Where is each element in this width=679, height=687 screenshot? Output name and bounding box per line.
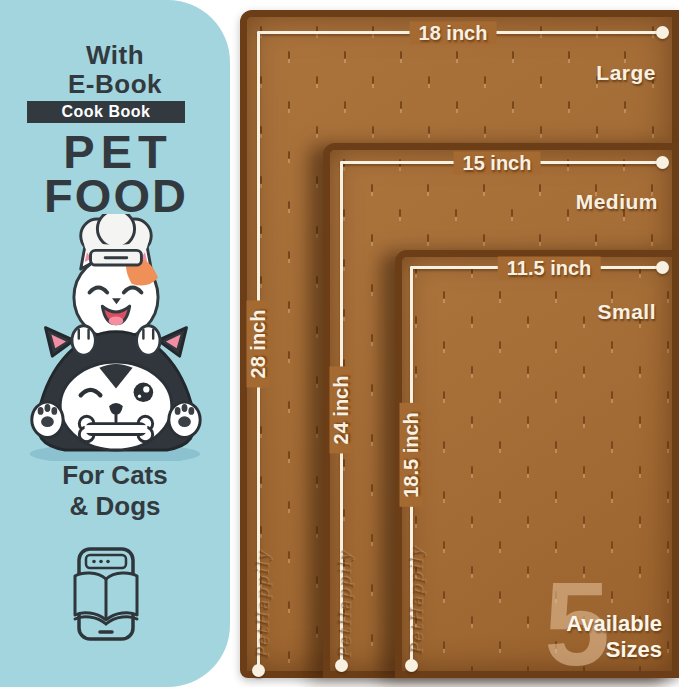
title-pet: PET [7, 128, 223, 175]
ebook-note-line2: E-Book [7, 70, 223, 99]
sidebar: With E-Book Cook Book PET FOOD [0, 0, 230, 687]
ebook-icon [68, 546, 144, 642]
dimension-dot [252, 664, 265, 677]
available-sizes-line2: Sizes [566, 637, 662, 663]
available-sizes-line1: Available [566, 611, 662, 637]
product-infographic: With E-Book Cook Book PET FOOD [0, 0, 679, 687]
audience-line2: & Dogs [7, 491, 223, 522]
audience-text: For Cats & Dogs [7, 460, 223, 521]
dimension-dot [656, 156, 669, 169]
height-label-medium: 24 inch [330, 367, 353, 454]
cat-dog-chef-illustration [22, 214, 208, 461]
embossed-brand-watermark: PetHappily [407, 546, 426, 655]
audience-line1: For Cats [7, 460, 223, 491]
title-food: FOOD [7, 172, 223, 219]
dog-icon [32, 328, 200, 450]
width-label-medium: 15 inch [454, 152, 541, 175]
ebook-note-line1: With [7, 41, 223, 70]
dog-paw-right [169, 402, 200, 437]
height-label-large: 28 inch [247, 301, 270, 388]
dog-paw-left [32, 402, 63, 437]
available-sizes-label: Available Sizes [566, 611, 662, 663]
mat-small: 11.5 inch 18.5 inch Small PetHappily 5 A… [395, 250, 679, 678]
chef-hat-icon [81, 214, 151, 265]
dimension-dot [335, 659, 348, 672]
dimension-dot [405, 659, 418, 672]
width-label-small: 11.5 inch [498, 257, 601, 280]
embossed-brand-watermark: PetHappily [253, 550, 272, 659]
width-label-large: 18 inch [410, 22, 497, 45]
size-name-medium: Medium [576, 190, 658, 214]
embossed-brand-watermark: PetHappily [335, 550, 354, 659]
height-label-small: 18.5 inch [400, 403, 423, 507]
ebook-note: With E-Book [7, 41, 223, 98]
dimension-dot [656, 26, 669, 39]
dimension-dot [656, 261, 669, 274]
size-name-large: Large [596, 61, 656, 85]
size-name-small: Small [597, 300, 656, 324]
cookbook-banner: Cook Book [27, 101, 185, 123]
